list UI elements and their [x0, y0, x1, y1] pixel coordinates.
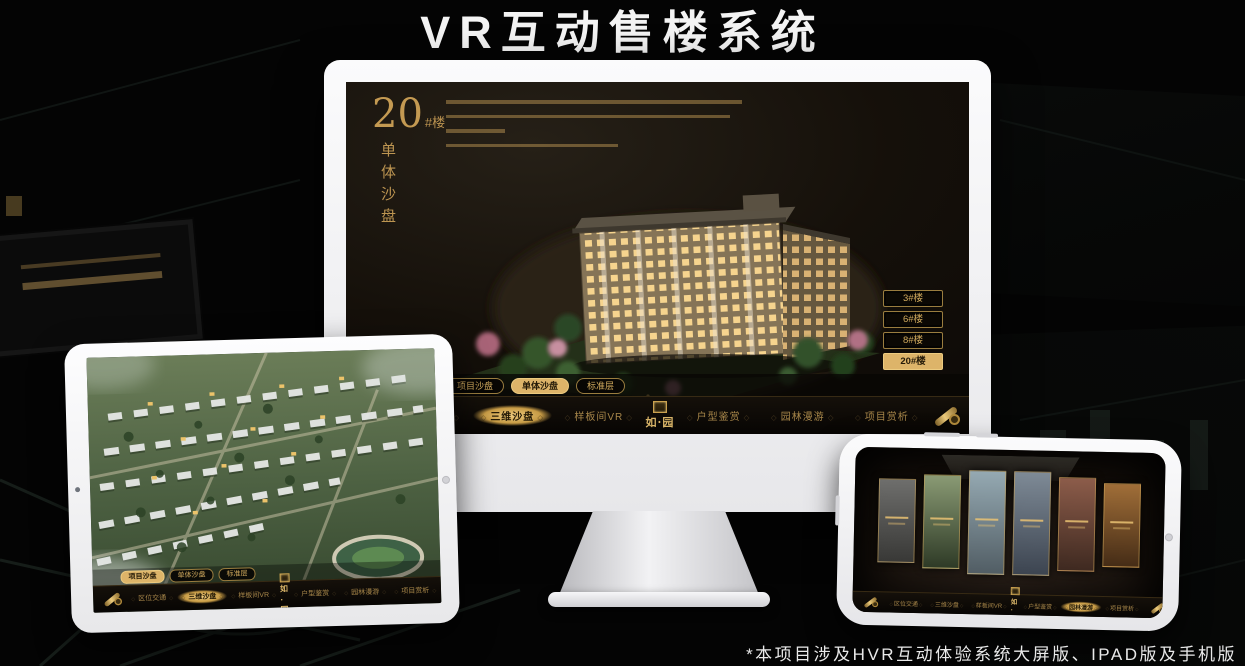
scene-card[interactable] — [922, 474, 961, 569]
scene-gallery — [853, 447, 1166, 598]
nav-item-floorplan-appreciation[interactable]: 户型鉴赏 — [290, 586, 340, 601]
scene-card[interactable] — [1012, 471, 1051, 576]
background-plaque-frame — [0, 219, 203, 357]
nav-item-3d-sandtable[interactable]: 三维沙盘 — [177, 589, 227, 604]
nav-item-showroom-vr[interactable]: 样板间VR — [967, 599, 1011, 611]
scene-card[interactable] — [877, 478, 916, 563]
subtab-project-sandtable[interactable]: 项目沙盘 — [446, 378, 504, 394]
nav-item-showroom-vr[interactable]: 样板间VR — [227, 588, 280, 603]
scene-card[interactable] — [1102, 482, 1141, 567]
nav-item-project-review[interactable]: 项目赏析 — [1101, 601, 1142, 613]
nav-item-garden-tour[interactable]: 园林漫游 — [763, 405, 843, 426]
nav-item-project-review[interactable]: 项目赏析 — [847, 405, 927, 426]
footnote-text: *本项目涉及HVR互动体验系统大屏版、IPAD版及手机版 — [746, 640, 1237, 665]
monitor-stand-base — [548, 592, 770, 607]
phone-device: 区位交通 三维沙盘 样板间VR 如·园 户型鉴赏 园林漫游 项目赏析 — [836, 433, 1182, 631]
subtab-standard-floor[interactable]: 标准层 — [576, 378, 625, 394]
nav-item-garden-tour[interactable]: 园林漫游 — [1060, 601, 1101, 613]
plaque-text-smudge — [21, 253, 161, 269]
subtab-project-sandtable[interactable]: 项目沙盘 — [120, 570, 164, 584]
panel-subtitle-vertical: 单体沙盘 — [378, 142, 399, 230]
power-button[interactable] — [835, 495, 840, 525]
description-line — [446, 100, 742, 104]
seal-icon — [1011, 587, 1020, 595]
nav-item-location-transport[interactable]: 区位交通 — [127, 590, 177, 605]
background-photo — [980, 83, 1245, 307]
subtab-single-sandtable[interactable]: 单体沙盘 — [169, 568, 213, 582]
scroll-icon[interactable] — [931, 403, 961, 429]
building-number-suffix: #楼 — [425, 115, 445, 130]
seal-icon — [280, 573, 290, 582]
building-number: 20 — [372, 91, 423, 137]
nav-item-location-transport[interactable]: 区位交通 — [885, 597, 926, 609]
home-button[interactable] — [442, 475, 450, 483]
monitor-stand-neck — [559, 511, 759, 595]
brand-logo: 如·园 — [280, 573, 291, 612]
building-button-8[interactable]: 8#楼 — [883, 332, 943, 349]
description-line — [446, 129, 505, 133]
promo-canvas: VR互动售楼系统 20#楼 单体沙盘 — [0, 0, 1245, 666]
brand-logo: 如·园 — [646, 401, 675, 430]
nav-item-garden-tour[interactable]: 园林漫游 — [340, 584, 390, 599]
brand-logo: 如·园 — [1010, 587, 1020, 619]
brand-logo-text: 如·园 — [1010, 596, 1020, 619]
seal-icon — [653, 401, 667, 413]
phone-screen: 区位交通 三维沙盘 样板间VR 如·园 户型鉴赏 园林漫游 项目赏析 — [852, 447, 1165, 618]
volume-button[interactable] — [924, 432, 960, 437]
nav-item-floorplan-appreciation[interactable]: 户型鉴赏 — [1020, 600, 1061, 612]
scroll-icon[interactable] — [862, 595, 879, 610]
building-button-3[interactable]: 3#楼 — [883, 290, 943, 307]
monitor-subtabs: 项目沙盘 单体沙盘 标准层 — [446, 378, 625, 394]
nav-item-floorplan-appreciation[interactable]: 户型鉴赏 — [679, 405, 759, 426]
camera-icon — [1165, 533, 1173, 541]
scene-card[interactable] — [1057, 477, 1096, 572]
camera-icon — [75, 487, 80, 492]
nav-item-showroom-vr[interactable]: 样板间VR — [557, 405, 641, 426]
page-title: VR互动售楼系统 — [0, 0, 1245, 61]
brand-logo-text: 如·园 — [646, 414, 675, 430]
nav-item-3d-sandtable[interactable]: 三维沙盘 — [473, 405, 553, 426]
scene-card[interactable] — [967, 470, 1006, 575]
description-line — [446, 115, 730, 119]
building-button-20[interactable]: 20#楼 — [883, 353, 943, 370]
nav-item-3d-sandtable[interactable]: 三维沙盘 — [926, 598, 967, 610]
tablet-device: 项目沙盘 单体沙盘 标准层 区位交通 三维沙盘 样板间VR 如·园 户型鉴赏 园… — [64, 334, 460, 634]
building-button-6[interactable]: 6#楼 — [883, 311, 943, 328]
building-selector: 3#楼 6#楼 8#楼 20#楼 — [883, 290, 943, 370]
volume-button[interactable] — [976, 433, 998, 437]
nav-item-project-review[interactable]: 项目赏析 — [390, 583, 440, 598]
description-line — [446, 144, 618, 148]
subtab-standard-floor[interactable]: 标准层 — [218, 567, 255, 581]
scroll-icon[interactable] — [101, 590, 122, 609]
plaque-text-smudge — [22, 271, 162, 290]
subtab-single-sandtable[interactable]: 单体沙盘 — [511, 378, 569, 394]
tablet-screen: 项目沙盘 单体沙盘 标准层 区位交通 三维沙盘 样板间VR 如·园 户型鉴赏 园… — [86, 348, 441, 613]
building-3d-model[interactable] — [418, 148, 888, 408]
scroll-icon[interactable] — [1149, 601, 1166, 616]
